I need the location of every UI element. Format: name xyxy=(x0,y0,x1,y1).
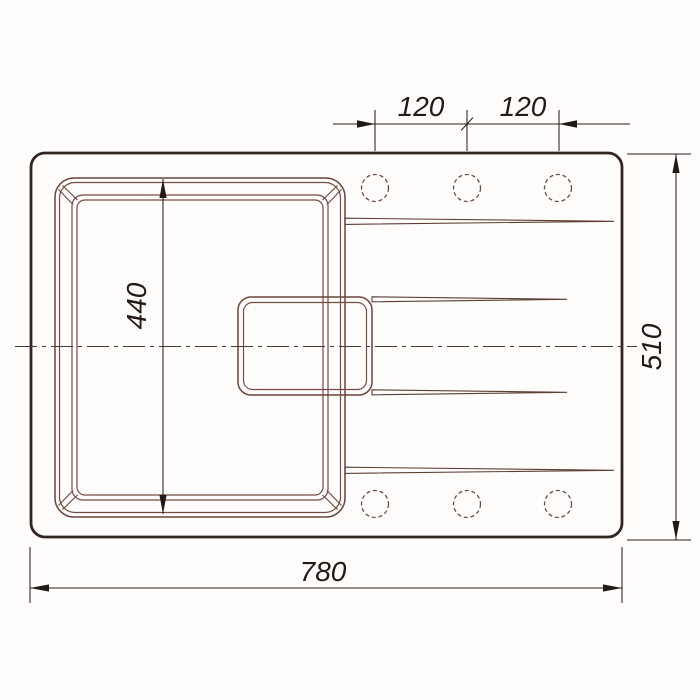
bowl-rim-outer xyxy=(55,178,345,517)
faucet-hole xyxy=(362,491,389,518)
dimension-arrow xyxy=(672,154,679,173)
dimension-arrow xyxy=(30,584,49,591)
dim-label-hole-spacing-1: 120 xyxy=(398,91,445,122)
faucet-hole xyxy=(362,175,389,202)
bowl-rim-inner xyxy=(60,183,341,513)
dimension-arrow xyxy=(159,495,166,514)
dim-label-overall-width: 780 xyxy=(300,556,347,587)
dimension-arrow xyxy=(159,179,166,198)
dimension-arrow xyxy=(672,521,679,540)
drainboard-groove xyxy=(345,218,614,224)
main-bowl xyxy=(55,178,345,517)
drainboard-groove xyxy=(372,297,567,302)
bowl-floor-outer xyxy=(72,195,328,500)
drainboard-groove xyxy=(345,467,614,473)
sink-outer-edge xyxy=(31,153,622,537)
dimension-hole-spacing: 120 120 xyxy=(333,91,630,151)
dimension-overall-depth: 510 xyxy=(627,154,691,540)
dimension-overall-width: 780 xyxy=(30,547,622,603)
faucet-hole xyxy=(545,175,572,202)
sink-technical-drawing-page: 120 120 440 510 780 xyxy=(0,0,700,700)
dimension-arrow xyxy=(559,120,577,128)
faucet-hole xyxy=(454,175,481,202)
sink-drawing: 120 120 440 510 780 xyxy=(0,0,700,700)
bowl-corner-chamfers xyxy=(59,186,342,510)
dim-label-hole-spacing-2: 120 xyxy=(500,91,547,122)
drainboard-groove xyxy=(372,390,567,395)
bowl-floor-inner xyxy=(77,200,323,495)
faucet-hole xyxy=(454,491,481,518)
faucet-hole xyxy=(545,491,572,518)
drainboard-grooves xyxy=(345,218,614,473)
dim-label-overall-depth: 510 xyxy=(636,323,667,370)
dimension-arrow xyxy=(357,120,375,128)
dimension-arrow xyxy=(603,584,622,591)
dim-label-bowl-length: 440 xyxy=(121,282,152,329)
